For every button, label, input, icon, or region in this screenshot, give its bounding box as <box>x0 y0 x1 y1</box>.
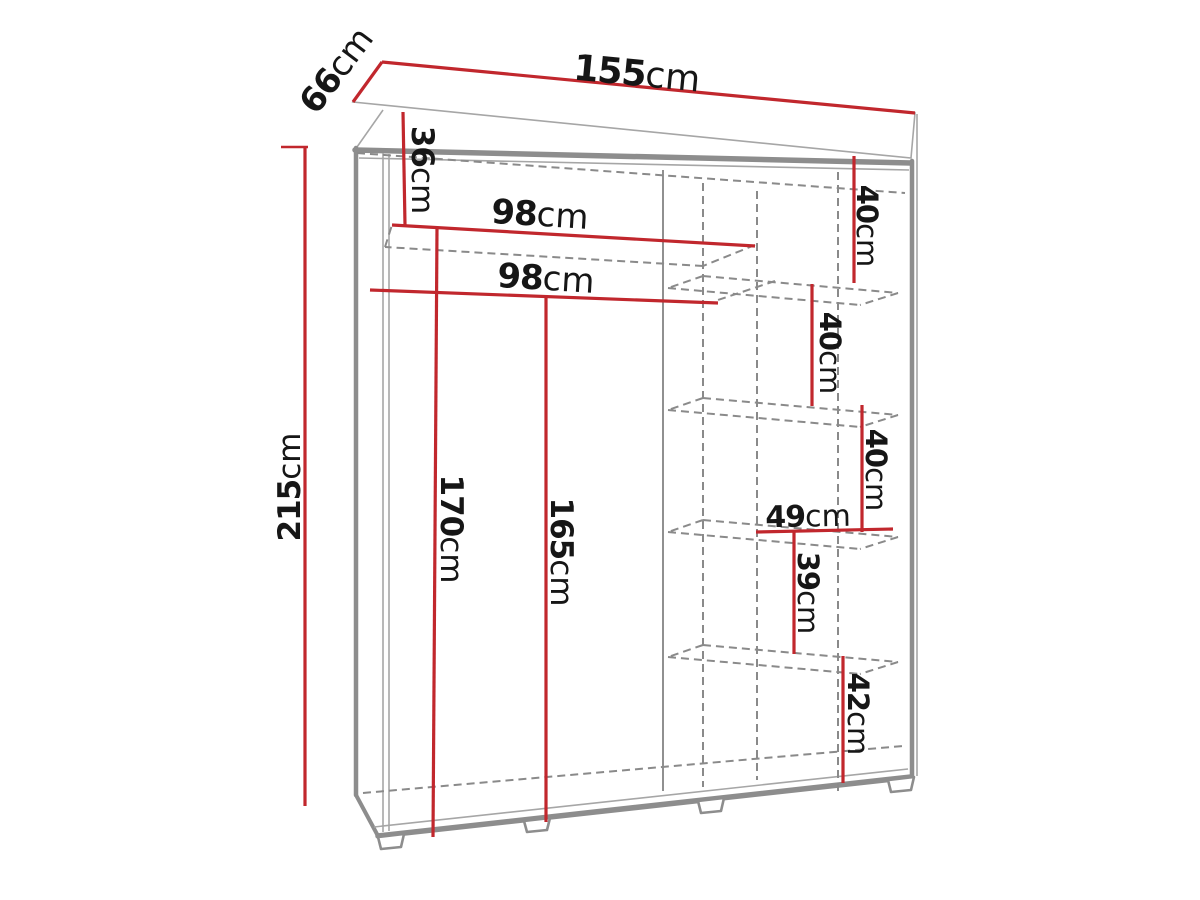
shelf <box>860 537 898 549</box>
dim-label-shelf-gap-2: 40cm <box>813 312 847 395</box>
dimension-labels: 155cm 66cm 215cm 36cm 98cm 98cm 170cm 16… <box>272 20 893 756</box>
dim-label-upper-rod-width: 98cm <box>490 192 589 238</box>
shelf <box>668 520 703 532</box>
dim-label-overall-height: 215cm <box>272 433 308 542</box>
dim-label-shelf-gap-5: 42cm <box>841 673 875 756</box>
bottom-edge-inner <box>374 769 908 827</box>
shelf <box>668 276 703 288</box>
shelf <box>668 657 860 674</box>
shelf <box>668 532 860 549</box>
dim-label-shelf-column-width: 49cm <box>765 499 851 535</box>
foot <box>378 834 404 849</box>
shelf <box>668 398 703 410</box>
dim-label-shelf-gap-3: 40cm <box>859 429 893 512</box>
dim-label-overall-width: 155cm <box>572 48 702 101</box>
shelf <box>703 276 898 293</box>
dim-label-lower-rod-width: 98cm <box>496 256 595 302</box>
foot <box>698 798 724 813</box>
foot <box>888 777 914 792</box>
interior-shelf <box>703 245 755 266</box>
shelf <box>668 645 703 657</box>
top-panel-edge <box>357 110 383 147</box>
dim-label-shelf-gap-4: 39cm <box>791 552 825 635</box>
shelf <box>668 410 860 427</box>
dim-label-left-interior-height: 170cm <box>433 475 469 584</box>
dim-label-top-shelf-offset: 36cm <box>404 126 440 214</box>
shelf <box>860 293 898 305</box>
dimension-lines <box>281 62 915 837</box>
shelf <box>703 645 898 662</box>
hidden-edges <box>357 153 905 793</box>
dim-label-overall-depth: 66cm <box>292 20 382 122</box>
shelf <box>703 398 898 415</box>
diagram-canvas: 155cm 66cm 215cm 36cm 98cm 98cm 170cm 16… <box>0 0 1200 900</box>
left-bottom-corner <box>356 795 378 836</box>
dim-label-shelf-gap-1: 40cm <box>850 185 884 268</box>
wardrobe-dimensions-diagram: 155cm 66cm 215cm 36cm 98cm 98cm 170cm 16… <box>0 0 1200 900</box>
dim-label-right-interior-height: 165cm <box>543 498 579 607</box>
shelf <box>860 415 898 427</box>
bottom-edge <box>378 777 911 836</box>
